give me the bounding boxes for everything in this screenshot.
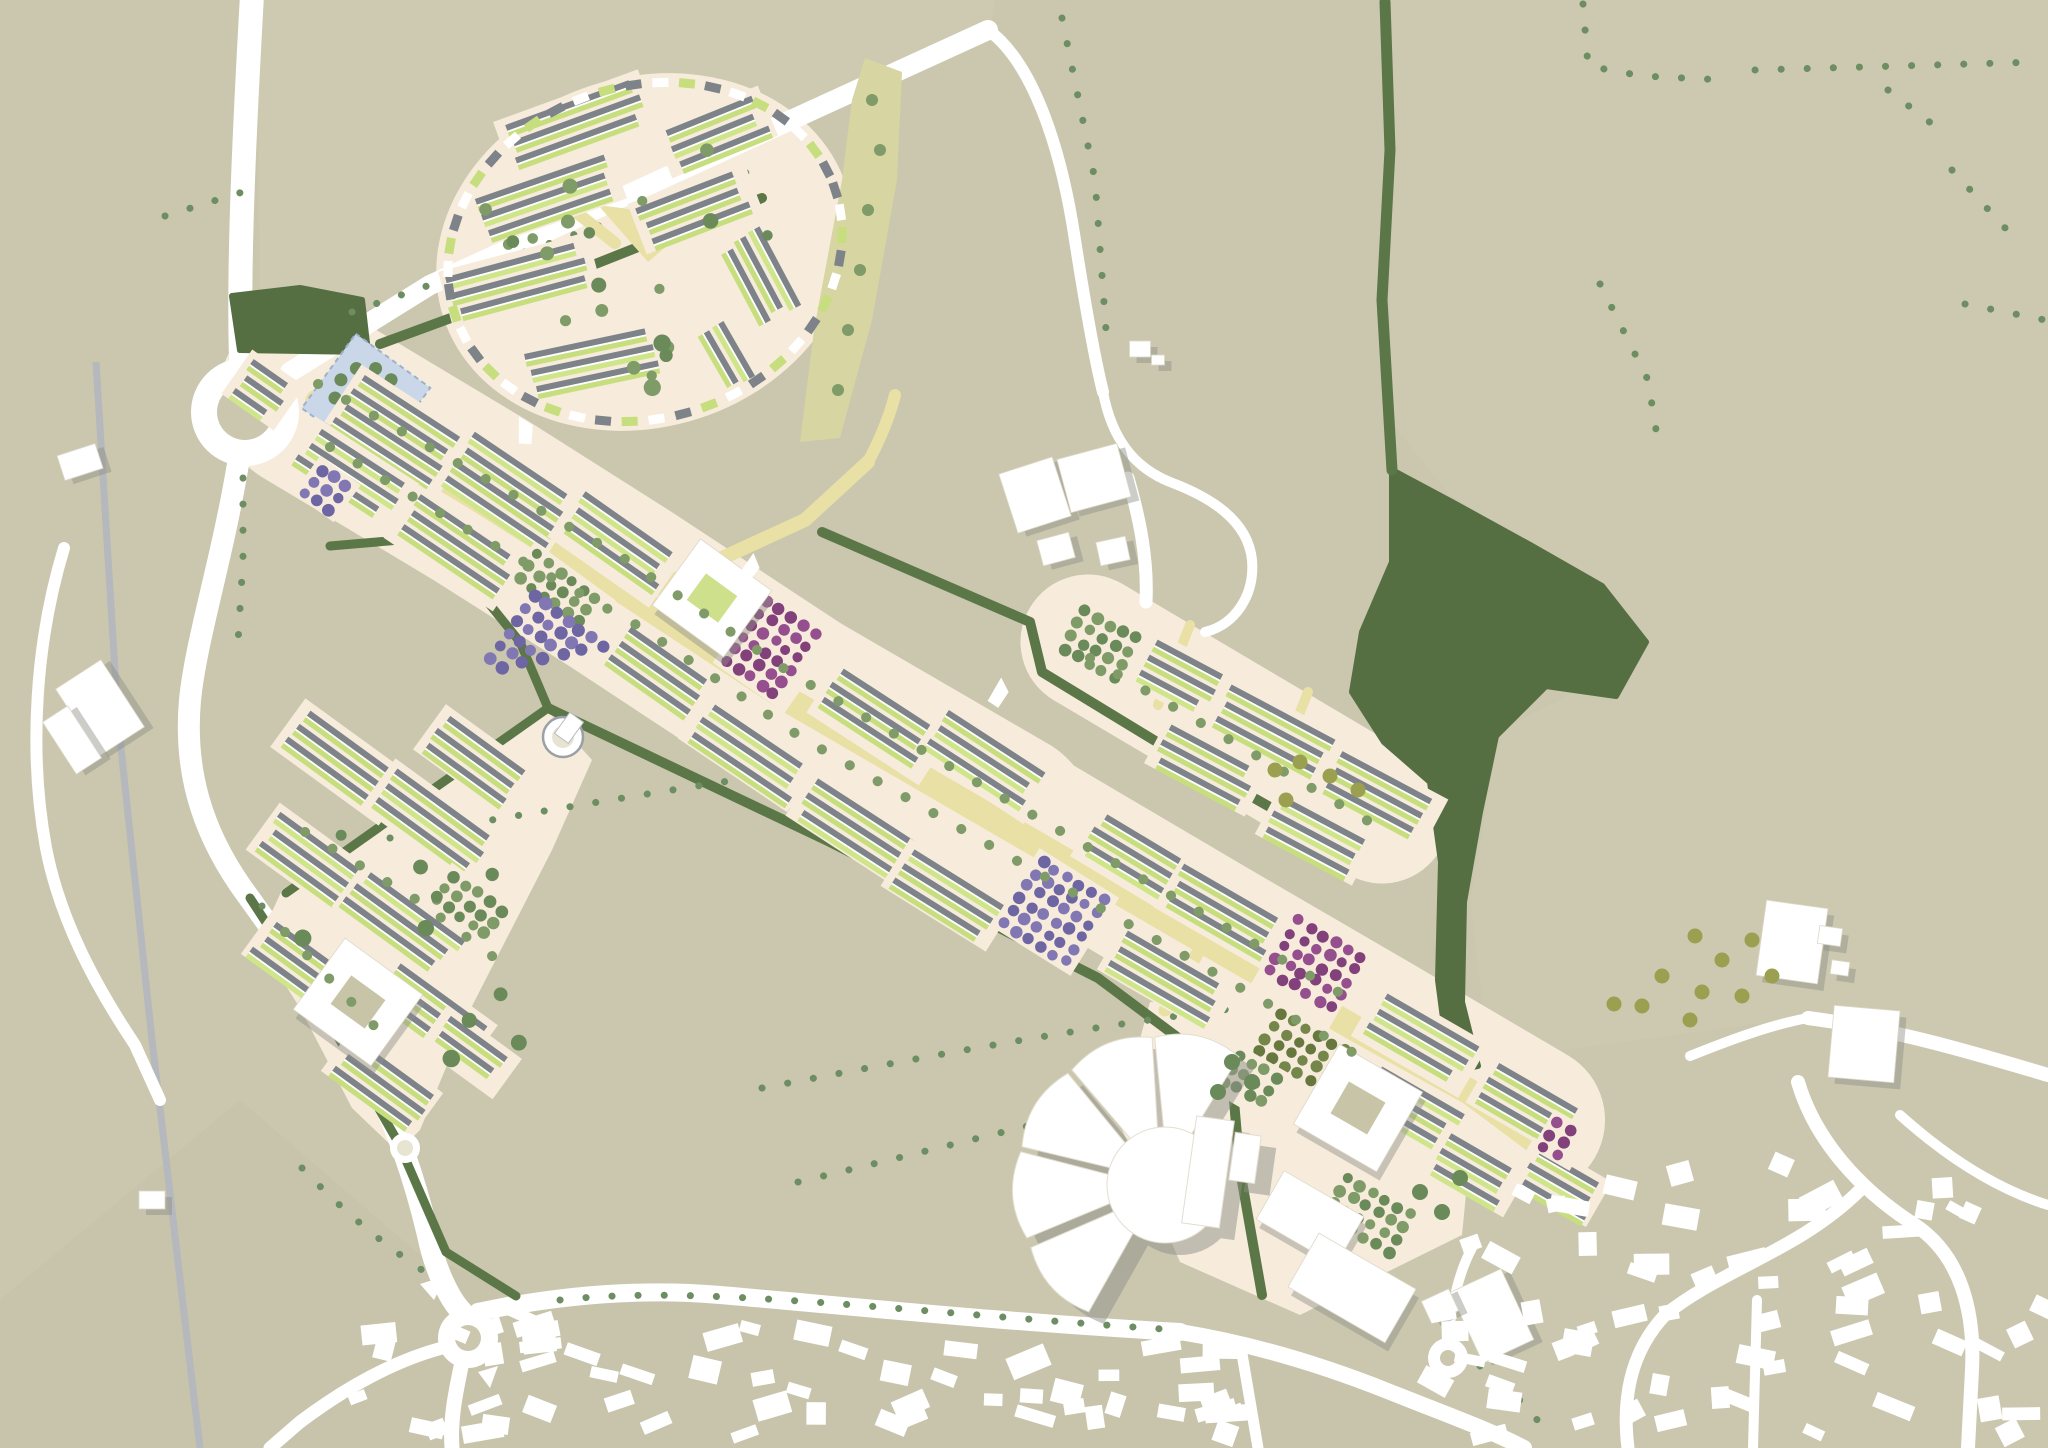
masterplan-svg <box>0 0 2048 1448</box>
village-building <box>1758 1276 1779 1289</box>
village-building <box>1578 1232 1597 1256</box>
masterplan-map <box>0 0 2048 1448</box>
village-building <box>806 1402 826 1425</box>
village-building <box>1203 1340 1238 1359</box>
village-building <box>1932 1177 1954 1199</box>
village-building <box>1977 1395 2003 1422</box>
village-building <box>1020 1388 1044 1404</box>
village-building <box>1441 1321 1468 1342</box>
village-building <box>1649 1373 1670 1396</box>
village-building <box>984 1393 1003 1406</box>
village-building <box>2002 1407 2040 1420</box>
village-building <box>1788 1198 1826 1221</box>
village-building <box>1099 1370 1120 1382</box>
village-building <box>1882 1224 1924 1239</box>
village-building <box>482 1342 504 1366</box>
village-building <box>1178 1383 1214 1402</box>
village-building <box>1918 1291 1942 1314</box>
village-building <box>1914 1200 1934 1221</box>
white-building <box>1827 1005 1907 1089</box>
village-building <box>1085 1405 1106 1430</box>
